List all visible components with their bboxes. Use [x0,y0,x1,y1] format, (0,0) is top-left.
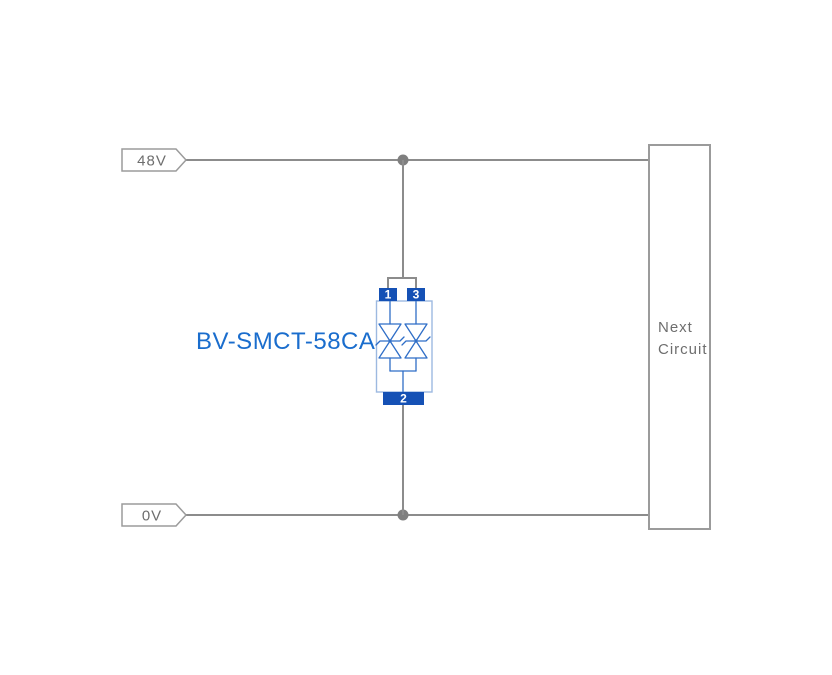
diagram-canvas: 48V 0V [0,0,832,675]
rail-48v: 48V [122,149,650,171]
tvs-component: 1 3 2 BV-SMCT-58CA [196,288,432,406]
pin-2-label: 2 [400,392,407,406]
next-circuit-box [649,145,710,529]
pin-1: 1 [379,288,397,302]
circuit-diagram: 48V 0V [0,0,832,675]
next-circuit-label-line2: Circuit [658,341,708,358]
diode-right-node-dot [414,339,417,342]
net-tag-48v-label: 48V [137,153,167,170]
diode-left-node-dot [388,339,391,342]
pin-3-label: 3 [413,288,420,302]
next-circuit-block: Next Circuit [649,145,710,529]
tvs-body-outline [377,301,433,392]
pin-2: 2 [383,392,424,406]
part-number-label: BV-SMCT-58CA [196,328,375,355]
rail-0v: 0V [122,504,650,526]
pin-3: 3 [407,288,425,302]
next-circuit-label-line1: Next [658,319,693,336]
pin-1-label: 1 [385,288,392,302]
net-tag-0v-label: 0V [142,508,162,525]
